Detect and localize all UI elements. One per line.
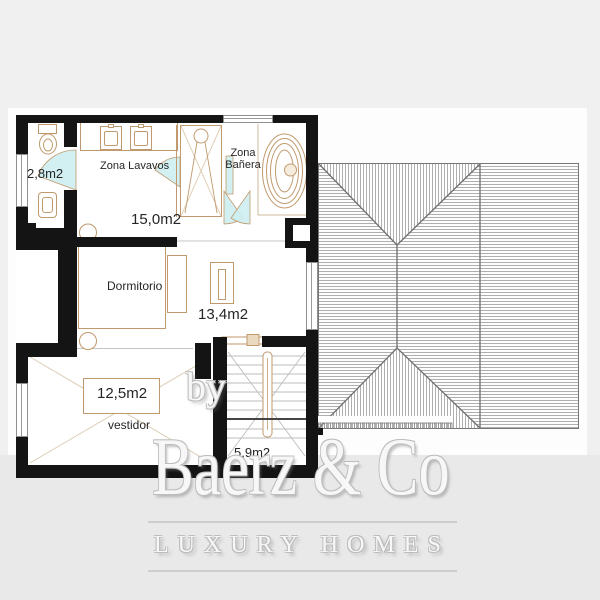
wall-stairhall-top <box>262 336 318 347</box>
wall-left-a <box>16 115 28 154</box>
wall-left-c <box>16 345 28 383</box>
washbasin-counter <box>80 123 178 151</box>
shower-screen <box>176 125 181 217</box>
wall-wc-partition-b <box>64 190 77 228</box>
bathroom-area-label: 15,0m2 <box>131 211 181 228</box>
watermark-rule-bottom <box>148 570 457 572</box>
floor-plan-canvas: 2,8m2 Zona Lavavos Zona Bañera 15,0m2 Do… <box>0 0 600 600</box>
wall-bath-bedroom-divider <box>58 237 177 247</box>
window-left-dressing <box>16 383 28 437</box>
shower-enclosure <box>180 125 222 217</box>
sink-right-faucet <box>138 124 144 128</box>
wall-mid-left <box>58 247 77 355</box>
duct-column-core <box>293 225 310 241</box>
sink-left-basin <box>104 131 118 146</box>
toilet-tank <box>38 124 57 134</box>
sink-right-basin <box>134 131 148 146</box>
bath-zone-line2: Bañera <box>225 159 260 171</box>
wall-right-b <box>306 248 318 262</box>
bath-zone-line1: Zona <box>230 147 255 159</box>
window-right-bedroom <box>306 262 318 330</box>
dressing-name-label: vestidor <box>108 418 150 432</box>
wall-top-left <box>16 115 223 123</box>
bath-zone-label: Zona Bañera <box>219 147 267 171</box>
watermark-by: by <box>186 367 226 407</box>
watermark-tagline: LUXURY HOMES <box>154 533 450 557</box>
bed-bench <box>167 255 187 313</box>
watermark-brand: Baerz & Co <box>152 426 450 508</box>
wall-right-a <box>306 115 318 218</box>
dressing-area-label: 12,5m2 <box>97 385 147 402</box>
wall-wc-partition-a <box>64 115 77 147</box>
bedroom-area-label: 13,4m2 <box>198 306 248 323</box>
radiator-slot <box>218 269 226 300</box>
washbasin-zone-label: Zona Lavavos <box>100 160 169 172</box>
window-top <box>223 115 273 123</box>
sink-left-faucet <box>108 124 114 128</box>
bedroom-name-label: Dormitorio <box>107 279 162 293</box>
bidet-inner <box>42 197 53 213</box>
watermark-rule-top <box>148 521 457 523</box>
wc-area-label: 2,8m2 <box>27 166 63 181</box>
